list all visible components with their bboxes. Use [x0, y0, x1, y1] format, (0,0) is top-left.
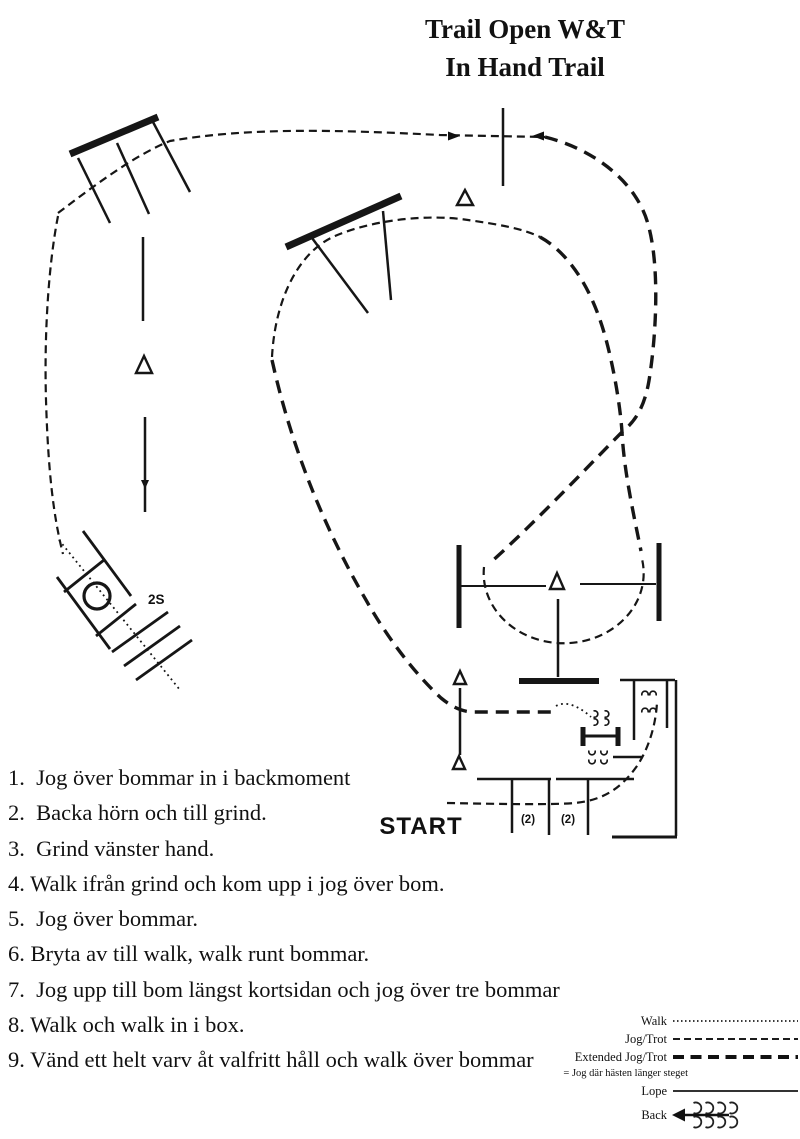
instruction-item-8: 8. Walk och walk in i box.: [8, 1007, 598, 1042]
obstacle-fan-poles-topleft: [70, 117, 190, 223]
jog-path-left-wall: [46, 216, 63, 554]
jog-circle: [484, 559, 644, 643]
cone-markers: [136, 190, 564, 769]
single-jog-poles: [143, 108, 503, 755]
legend-row-extended-jog: Extended Jog/Trot: [560, 1048, 800, 1066]
back-through-marks: [589, 691, 656, 764]
instruction-item-7: 7. Jog upp till bom längst kortsidan och…: [8, 972, 598, 1007]
instruction-item-2: 2. Backa hörn och till grind.: [8, 795, 598, 830]
legend-line-walk: [673, 1020, 798, 1022]
legend-note: = Jog där hästen länger steget: [560, 1066, 800, 1082]
back-symbol-icon: [671, 1100, 749, 1130]
legend-row-jog: Jog/Trot: [560, 1030, 800, 1048]
legend-row-walk: Walk: [560, 1012, 800, 1030]
obstacle-fan-poles-center: [286, 196, 401, 313]
legend-label-extended-jog: Extended Jog/Trot: [560, 1050, 667, 1065]
legend-line-lope: [673, 1090, 798, 1092]
direction-arrows: [141, 132, 544, 490]
legend-label-back: Back: [560, 1108, 667, 1123]
instruction-item-9: 9. Vänd ett helt varv åt valfritt håll o…: [8, 1042, 598, 1077]
trail-course-page: Trail Open W&T In Hand Trail: [0, 0, 800, 1139]
gate-station-label: 2S: [148, 592, 165, 607]
obstacle-gate-2s: [57, 531, 192, 680]
legend-line-extended-jog: [673, 1055, 798, 1059]
instruction-item-4: 4. Walk ifrån grind och kom upp i jog öv…: [8, 866, 598, 901]
instruction-item-1: 1. Jog över bommar in i backmoment: [8, 760, 598, 795]
extended-jog-right-loop: [489, 137, 656, 564]
legend-row-lope: Lope: [560, 1082, 800, 1100]
legend-label-lope: Lope: [560, 1084, 667, 1099]
gait-legend: Walk Jog/Trot Extended Jog/Trot = Jog dä…: [560, 1012, 800, 1130]
instruction-item-3: 3. Grind vänster hand.: [8, 831, 598, 866]
instruction-item-5: 5. Jog över bommar.: [8, 901, 598, 936]
walk-path-gate: [59, 540, 591, 717]
extended-jog-left-diagonal: [272, 360, 553, 712]
legend-label-jog: Jog/Trot: [560, 1032, 667, 1047]
legend-label-walk: Walk: [560, 1014, 667, 1029]
legend-line-jog: [673, 1038, 798, 1040]
instruction-list: 1. Jog över bommar in i backmoment 2. Ba…: [8, 760, 598, 1078]
instruction-item-6: 6. Bryta av till walk, walk runt bommar.: [8, 936, 598, 971]
legend-row-back: Back: [560, 1100, 800, 1130]
